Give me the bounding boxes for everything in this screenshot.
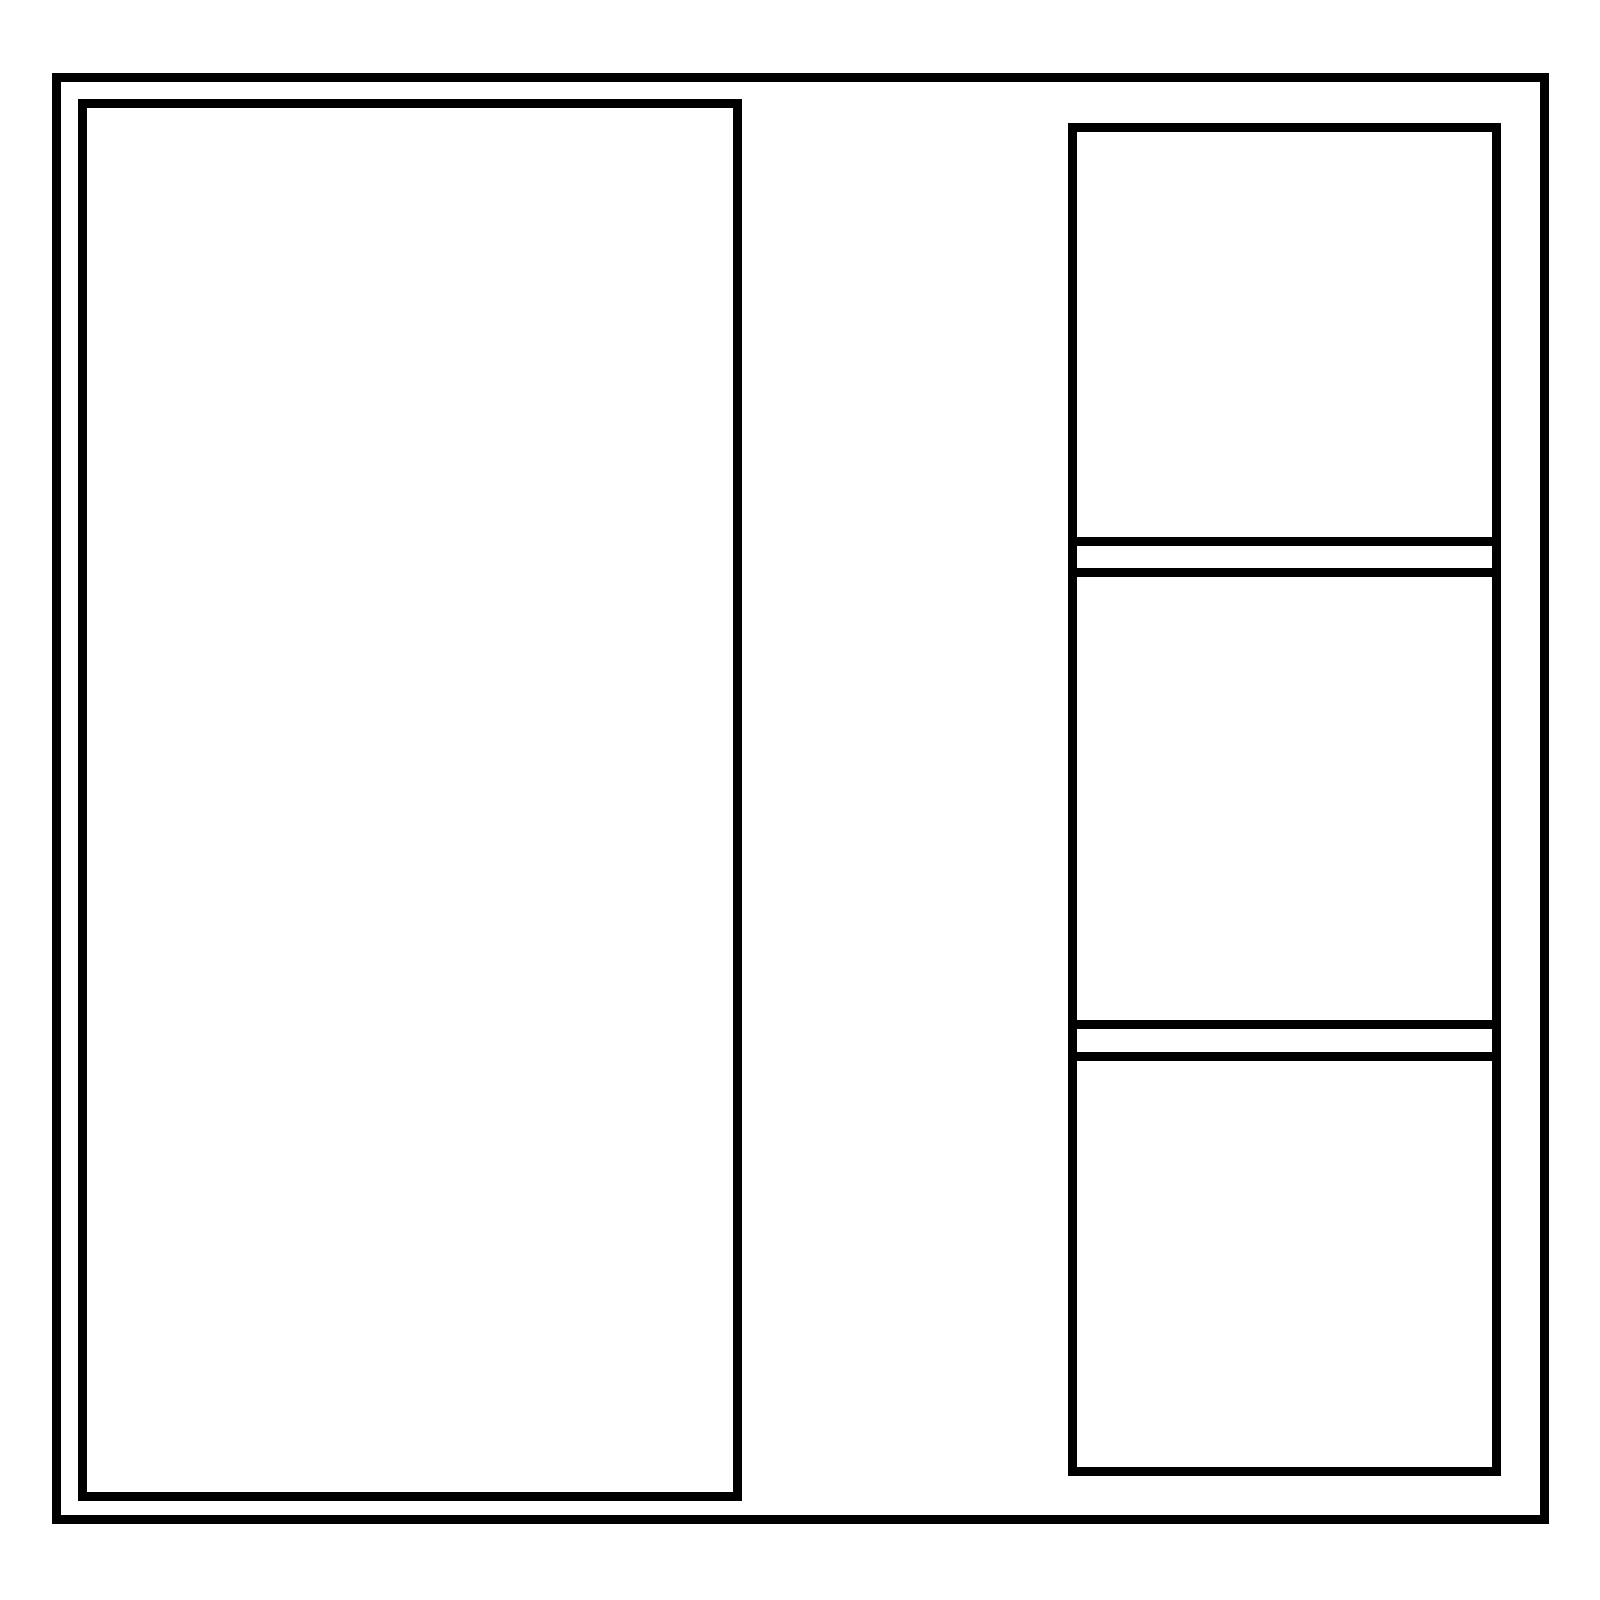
divider-band-2 xyxy=(1077,1020,1492,1061)
right-column-section-middle xyxy=(1077,577,1492,1020)
right-column-section-top xyxy=(1077,132,1492,537)
canvas: { "canvas": { "background_color": "#ffff… xyxy=(0,0,1600,1600)
divider-band-1 xyxy=(1077,537,1492,577)
left-panel xyxy=(78,99,742,1501)
right-column xyxy=(1068,123,1501,1476)
right-column-section-bottom xyxy=(1077,1061,1492,1467)
